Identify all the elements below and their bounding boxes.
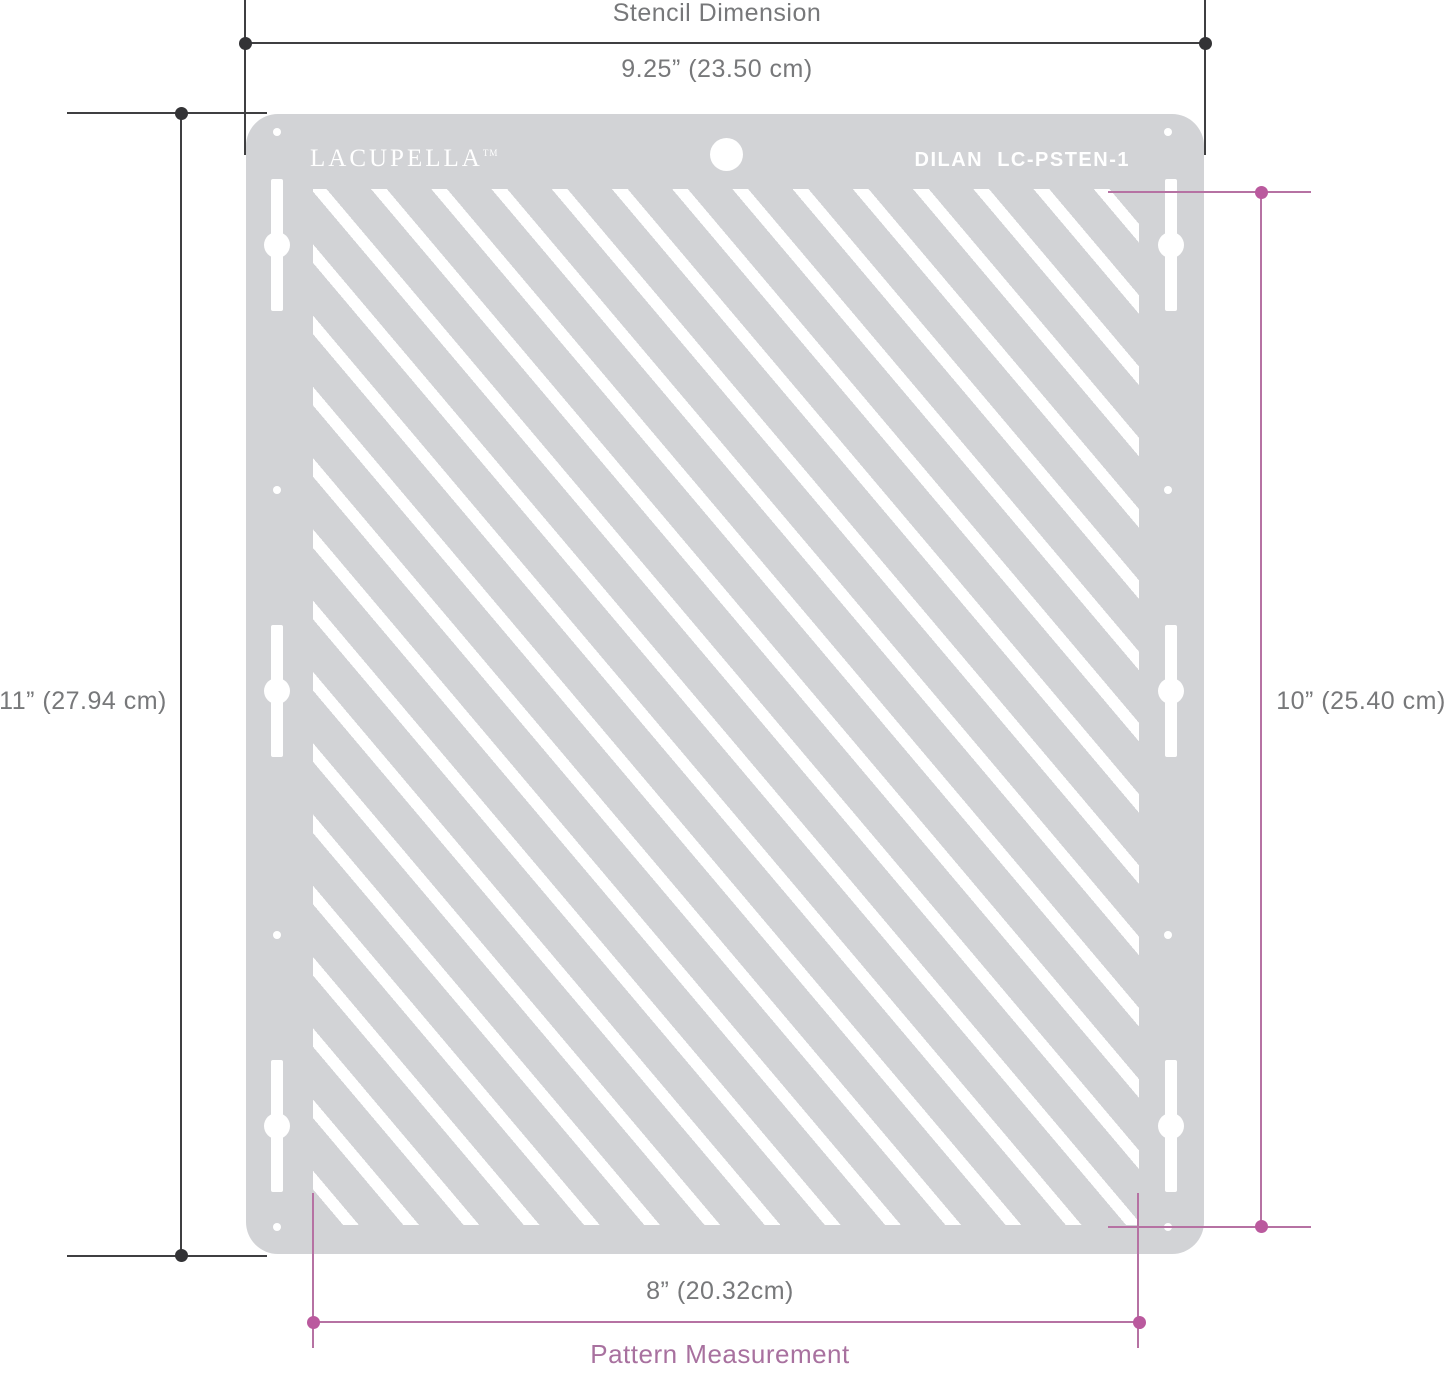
extension-line-stencil-right	[1204, 0, 1206, 155]
pin-hole-icon	[273, 486, 281, 494]
hanging-hole-icon	[710, 138, 743, 171]
extension-line-stencil-top	[67, 112, 267, 114]
dimension-line-pattern-width	[313, 1321, 1139, 1323]
slot-circle-icon	[264, 1113, 290, 1139]
pattern-measurement-title: Pattern Measurement	[470, 1341, 970, 1367]
dimension-endpoint-dot	[307, 1316, 320, 1329]
extension-line-stencil-bottom	[67, 1255, 267, 1257]
dimension-endpoint-dot	[1133, 1316, 1146, 1329]
dimension-endpoint-dot	[175, 107, 188, 120]
trademark-symbol: TM	[483, 148, 499, 158]
stencil-height-label: 11” (27.94 cm)	[0, 688, 178, 714]
registration-mark-right-top	[1158, 179, 1184, 311]
extension-line-pattern-top	[1108, 191, 1311, 193]
dimension-endpoint-dot	[1199, 37, 1212, 50]
registration-mark-right-middle	[1158, 625, 1184, 757]
pattern-width-label: 8” (20.32cm)	[470, 1278, 970, 1304]
stencil-width-label: 9.25” (23.50 cm)	[467, 56, 967, 82]
dimension-line-stencil-width	[245, 42, 1205, 44]
extension-line-stencil-left	[244, 0, 246, 155]
pin-hole-icon	[1164, 931, 1172, 939]
registration-mark-left-top	[264, 179, 290, 311]
slot-circle-icon	[264, 678, 290, 704]
pin-hole-icon	[1164, 128, 1172, 136]
dimension-endpoint-dot	[1255, 186, 1268, 199]
registration-mark-left-bottom	[264, 1060, 290, 1192]
registration-mark-left-middle	[264, 625, 290, 757]
slot-circle-icon	[1158, 1113, 1184, 1139]
brand-text: LACUPELLA	[310, 145, 483, 172]
dimension-line-stencil-height	[180, 113, 182, 1256]
slot-circle-icon	[1158, 232, 1184, 258]
stencil-dimension-title: Stencil Dimension	[467, 0, 967, 26]
pin-hole-icon	[1164, 486, 1172, 494]
pin-hole-icon	[273, 931, 281, 939]
pin-hole-icon	[273, 128, 281, 136]
registration-mark-right-bottom	[1158, 1060, 1184, 1192]
stencil-dimension-diagram: LACUPELLATM DILAN LC-PSTEN-1	[0, 0, 1445, 1374]
slot-circle-icon	[264, 232, 290, 258]
dimension-endpoint-dot	[239, 37, 252, 50]
diagonal-stripe-pattern	[313, 189, 1139, 1225]
stencil: LACUPELLATM DILAN LC-PSTEN-1	[246, 114, 1204, 1254]
dimension-endpoint-dot	[1255, 1220, 1268, 1233]
dimension-endpoint-dot	[175, 1249, 188, 1262]
brand-logo: LACUPELLATM	[310, 141, 498, 171]
dimension-line-pattern-height	[1260, 192, 1262, 1227]
pin-hole-icon	[273, 1223, 281, 1231]
product-code: DILAN LC-PSTEN-1	[915, 150, 1131, 170]
slot-circle-icon	[1158, 678, 1184, 704]
pattern-height-label: 10” (25.40 cm)	[1270, 688, 1445, 714]
